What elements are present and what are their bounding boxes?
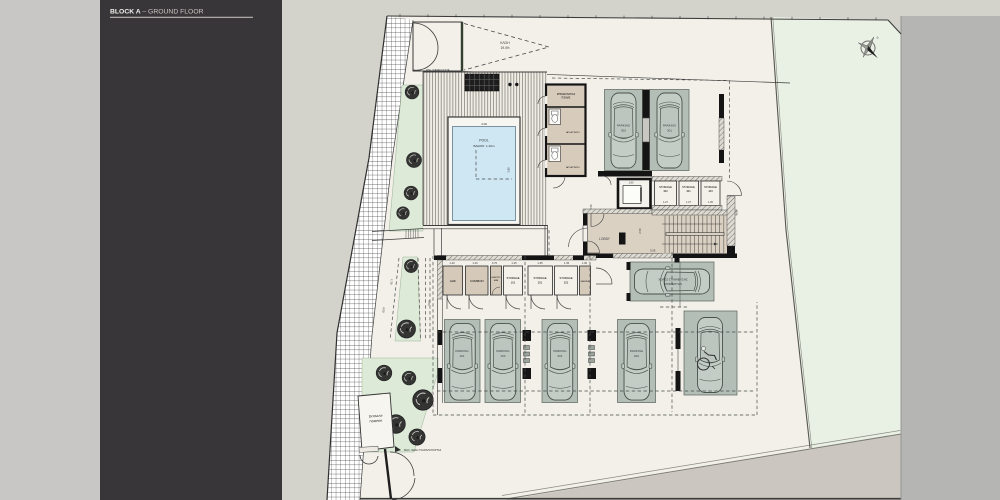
svg-text:1.40: 1.40 [472, 261, 478, 265]
svg-text:1.05: 1.05 [708, 201, 713, 204]
svg-text:ΚΛΙΣΗ: ΚΛΙΣΗ [500, 41, 510, 45]
svg-text:SERVER: SERVER [581, 281, 590, 283]
svg-text:ΧΩΡΟΣ ΣΤΑΘΜΕΥΣΗΣ: ΧΩΡΟΣ ΣΤΑΘΜΕΥΣΗΣ [658, 278, 688, 282]
svg-text:PARKING: PARKING [617, 124, 631, 128]
svg-text:PARKING: PARKING [496, 349, 510, 353]
svg-text:19.4%: 19.4% [500, 46, 509, 50]
svg-text:2.50: 2.50 [638, 228, 642, 234]
svg-text:301: 301 [667, 129, 672, 133]
svg-text:301: 301 [686, 189, 691, 193]
svg-text:PARKING: PARKING [553, 349, 567, 353]
svg-text:ΕΠΙΣΚΕΠΤΩΝ: ΕΠΙΣΚΕΠΤΩΝ [664, 282, 682, 286]
svg-text:1.35: 1.35 [564, 261, 570, 265]
svg-text:1.30: 1.30 [389, 279, 394, 285]
svg-text:ΔΩΜ: ΔΩΜ [494, 279, 499, 282]
svg-text:STORAGE: STORAGE [533, 276, 546, 280]
svg-text:POOL: POOL [479, 139, 489, 143]
svg-text:AHK: AHK [450, 279, 456, 283]
svg-text:201: 201 [557, 354, 562, 358]
svg-text:PARKING: PARKING [455, 349, 469, 353]
svg-text:STORAGE: STORAGE [682, 185, 695, 189]
svg-text:BLOCK A – GROUND FLOOR: BLOCK A – GROUND FLOOR [110, 9, 204, 16]
svg-text:LOBBY: LOBBY [599, 237, 611, 241]
svg-text:PARKING: PARKING [663, 124, 677, 128]
svg-text:ΑΠΟΔΥΤΗΡΙΟ: ΑΠΟΔΥΤΗΡΙΟ [566, 166, 580, 169]
svg-text:COMMON: COMMON [470, 279, 484, 283]
svg-text:1.27: 1.27 [663, 201, 668, 204]
svg-text:102: 102 [500, 354, 505, 358]
svg-text:101: 101 [511, 281, 516, 285]
svg-text:1.00: 1.00 [582, 261, 588, 265]
svg-text:PARKING: PARKING [630, 349, 644, 353]
svg-text:202: 202 [564, 281, 569, 285]
svg-text:1.35: 1.35 [537, 261, 543, 265]
svg-text:103: 103 [708, 189, 713, 193]
svg-text:1.27: 1.27 [686, 201, 691, 204]
svg-text:0.70: 0.70 [492, 261, 498, 265]
svg-text:4.65: 4.65 [427, 300, 432, 306]
svg-text:ΒΑΘΟΣ: 1.40m: ΒΑΘΟΣ: 1.40m [473, 144, 495, 148]
svg-text:4.00: 4.00 [381, 307, 386, 313]
svg-text:ΜΗΧ. ΘΕΣΗ ΓΚΑΡΑΖΟΠΟΡΤΑΣ: ΜΗΧ. ΘΕΣΗ ΓΚΑΡΑΖΟΠΟΡΤΑΣ [404, 448, 442, 452]
svg-text:302: 302 [663, 189, 668, 193]
svg-text:202: 202 [634, 354, 639, 358]
svg-text:1.80: 1.80 [629, 182, 634, 185]
svg-text:STORAGE: STORAGE [506, 276, 519, 280]
svg-text:201: 201 [538, 281, 543, 285]
svg-text:302: 302 [621, 129, 626, 133]
svg-text:1.45: 1.45 [511, 261, 517, 265]
svg-text:ΜΗΧΑΝΟΛΟΓΙΚΑ: ΜΗΧΑΝΟΛΟΓΙΚΑ [557, 93, 576, 96]
svg-text:3.05: 3.05 [650, 249, 656, 253]
svg-text:STORAGE: STORAGE [704, 185, 717, 189]
svg-text:101: 101 [459, 354, 464, 358]
svg-text:STORAGE: STORAGE [559, 276, 572, 280]
svg-text:4.00: 4.00 [481, 122, 487, 126]
svg-text:ΠΙΣΙΝΑΣ: ΠΙΣΙΝΑΣ [562, 97, 572, 100]
svg-text:STORAGE: STORAGE [659, 185, 672, 189]
svg-text:1.20: 1.20 [449, 261, 455, 265]
svg-text:ΜΗΧ. ΓΚΑΡΑΖΟΠΟΡΤΑ: ΜΗΧ. ΓΚΑΡΑΖΟΠΟΡΤΑ [426, 68, 450, 71]
svg-text:ΑΠΟΔΥΤΗΡΙΟ: ΑΠΟΔΥΤΗΡΙΟ [566, 131, 580, 134]
svg-text:1.80: 1.80 [507, 167, 511, 173]
svg-text:ΗΛΕΚΤΡΟ: ΗΛΕΚΤΡΟ [491, 277, 501, 279]
